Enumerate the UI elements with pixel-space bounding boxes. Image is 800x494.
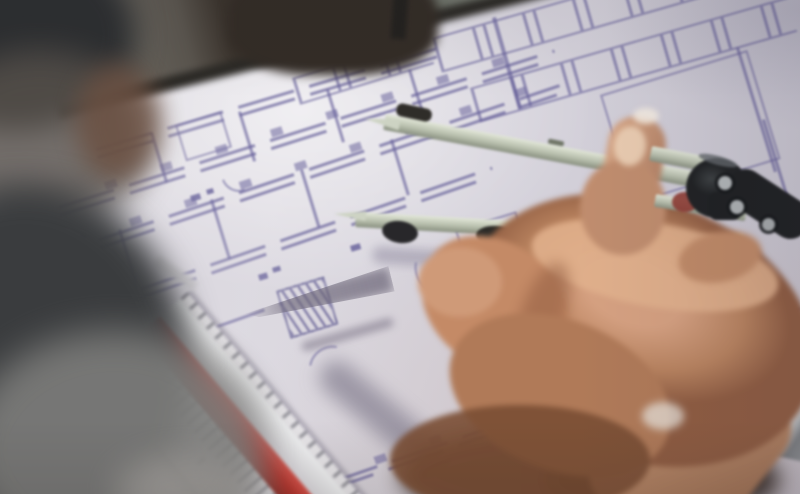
head-screw-hole-3 <box>762 218 775 231</box>
knuckle-over-head <box>674 224 767 290</box>
head-screw-hole-2 <box>730 200 744 214</box>
head-screw-hole <box>718 176 732 190</box>
film-still <box>0 0 800 494</box>
